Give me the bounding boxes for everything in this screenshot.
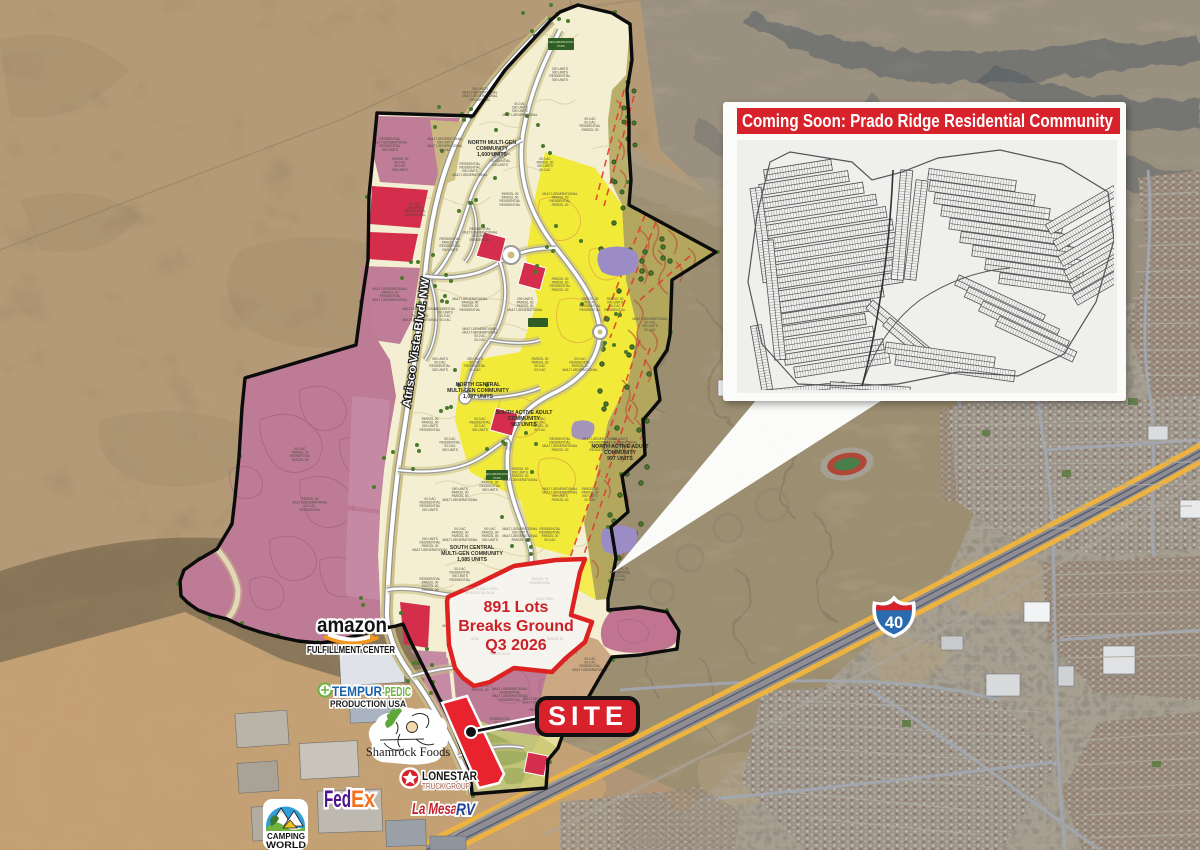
svg-text:RESIDENTIAL 00 AC: RESIDENTIAL 00 AC xyxy=(465,591,496,595)
svg-text:000 UNITS: 000 UNITS xyxy=(472,428,488,432)
svg-text:00.0 AC: 00.0 AC xyxy=(534,368,546,372)
svg-text:PARCEL 00: PARCEL 00 xyxy=(552,203,569,207)
svg-text:PRODUCTION USA: PRODUCTION USA xyxy=(330,699,406,710)
svg-text:PARCEL 00: PARCEL 00 xyxy=(547,637,564,641)
svg-text:RESIDENTIAL: RESIDENTIAL xyxy=(470,238,491,242)
svg-text:Breaks Ground: Breaks Ground xyxy=(458,618,574,635)
svg-text:40: 40 xyxy=(885,614,903,632)
svg-text:891 Lots: 891 Lots xyxy=(484,599,549,616)
svg-text:PARCEL 00: PARCEL 00 xyxy=(472,688,489,692)
svg-text:00.0 AC: 00.0 AC xyxy=(539,168,551,172)
svg-text:000 UNITS: 000 UNITS xyxy=(482,538,498,542)
svg-text:PARCEL 00: PARCEL 00 xyxy=(292,458,309,462)
svg-text:RESIDENTIAL: RESIDENTIAL xyxy=(460,308,481,312)
svg-text:RESIDENTIAL: RESIDENTIAL xyxy=(580,308,601,312)
svg-text:MULTI-GENERATIONAL: MULTI-GENERATIONAL xyxy=(442,538,477,542)
svg-text:00 AC: 00 AC xyxy=(471,637,480,641)
svg-text:PARCEL 00: PARCEL 00 xyxy=(422,588,439,592)
svg-text:Fed: Fed xyxy=(324,786,351,813)
svg-text:MULTI-GENERATIONAL: MULTI-GENERATIONAL xyxy=(452,173,487,177)
svg-text:RESIDENTIAL: RESIDENTIAL xyxy=(450,578,471,582)
svg-text:PARCEL 00: PARCEL 00 xyxy=(552,498,569,502)
svg-text:MULTI-GENERATIONAL: MULTI-GENERATIONAL xyxy=(442,498,477,502)
svg-text:RESIDENTIAL: RESIDENTIAL xyxy=(300,508,321,512)
svg-text:MULTI-GENERATIONAL: MULTI-GENERATIONAL xyxy=(562,368,597,372)
svg-text:Shamrock Foods: Shamrock Foods xyxy=(366,745,451,759)
svg-text:RESIDENTIAL: RESIDENTIAL xyxy=(500,203,521,207)
svg-text:MULTI-GENERATIONAL: MULTI-GENERATIONAL xyxy=(507,308,542,312)
svg-text:Q3 2026: Q3 2026 xyxy=(485,637,546,654)
svg-text:00.0 AC: 00.0 AC xyxy=(614,578,626,582)
svg-text:SITE: SITE xyxy=(548,701,628,731)
svg-text:00.0 AC: 00.0 AC xyxy=(474,338,486,342)
svg-text:La Mesa: La Mesa xyxy=(412,801,457,818)
svg-text:RESIDENTIAL: RESIDENTIAL xyxy=(420,428,441,432)
svg-text:RV: RV xyxy=(456,800,476,819)
svg-text:00.0 AC: 00.0 AC xyxy=(584,498,596,502)
svg-text:amazon: amazon xyxy=(317,614,387,637)
svg-text:-PEDIC: -PEDIC xyxy=(382,685,411,699)
svg-text:RESIDENTIAL: RESIDENTIAL xyxy=(500,698,521,702)
svg-text:000 UNITS: 000 UNITS xyxy=(442,448,458,452)
svg-text:000 UNITS: 000 UNITS xyxy=(492,163,508,167)
svg-text:00.0 AC: 00.0 AC xyxy=(439,148,451,152)
svg-text:000 UNITS: 000 UNITS xyxy=(392,168,408,172)
svg-text:00.0 AC: 00.0 AC xyxy=(644,328,656,332)
svg-text:MULTI-GENERATIONAL: MULTI-GENERATIONAL xyxy=(502,113,537,117)
svg-text:997 UNITS: 997 UNITS xyxy=(607,456,633,462)
svg-text:00.0 AC: 00.0 AC xyxy=(544,538,556,542)
svg-text:Ex: Ex xyxy=(351,786,376,813)
svg-text:RESIDENTIAL: RESIDENTIAL xyxy=(530,581,551,585)
svg-text:00.0 AC: 00.0 AC xyxy=(469,368,481,372)
svg-text:000 UNITS: 000 UNITS xyxy=(422,508,438,512)
svg-text:WORLD: WORLD xyxy=(266,840,306,850)
svg-text:PARCEL 00: PARCEL 00 xyxy=(582,128,599,132)
svg-text:RESIDENTIAL: RESIDENTIAL xyxy=(605,308,626,312)
svg-text:1,097 UNITS: 1,097 UNITS xyxy=(463,394,494,400)
svg-text:MULTI-GENERATIONAL: MULTI-GENERATIONAL xyxy=(372,298,407,302)
svg-text:RESIDENTIAL: RESIDENTIAL xyxy=(470,98,491,102)
svg-text:000 UNITS: 000 UNITS xyxy=(382,148,398,152)
svg-text:983 UNITS: 983 UNITS xyxy=(511,422,537,428)
svg-text:1,600 UNITS: 1,600 UNITS xyxy=(477,152,508,158)
svg-text:00.0 AC: 00.0 AC xyxy=(439,318,451,322)
svg-text:FULFILLMENT CENTER: FULFILLMENT CENTER xyxy=(307,645,396,656)
svg-text:PARCEL 00: PARCEL 00 xyxy=(552,288,569,292)
svg-text:TEMPUR: TEMPUR xyxy=(332,683,382,699)
svg-text:PARK: PARK xyxy=(557,44,565,48)
svg-text:Coming Soon: Prado Ridge Resid: Coming Soon: Prado Ridge Residential Com… xyxy=(742,111,1113,131)
svg-text:PARCEL 00: PARCEL 00 xyxy=(512,538,529,542)
svg-text:000 UNITS: 000 UNITS xyxy=(432,368,448,372)
svg-text:000 UNITS: 000 UNITS xyxy=(442,248,458,252)
svg-text:000 UNITS: 000 UNITS xyxy=(482,488,498,492)
svg-text:000 UNITS: 000 UNITS xyxy=(552,78,568,82)
svg-text:RESIDENTIAL: RESIDENTIAL xyxy=(405,213,426,217)
svg-text:00.0 AC: 00.0 AC xyxy=(534,428,546,432)
svg-text:PARCEL 00: PARCEL 00 xyxy=(552,448,569,452)
svg-text:1,085 UNITS: 1,085 UNITS xyxy=(457,557,488,563)
svg-text:TRUCK GROUP: TRUCK GROUP xyxy=(422,781,470,791)
svg-text:PARK: PARK xyxy=(493,476,501,480)
